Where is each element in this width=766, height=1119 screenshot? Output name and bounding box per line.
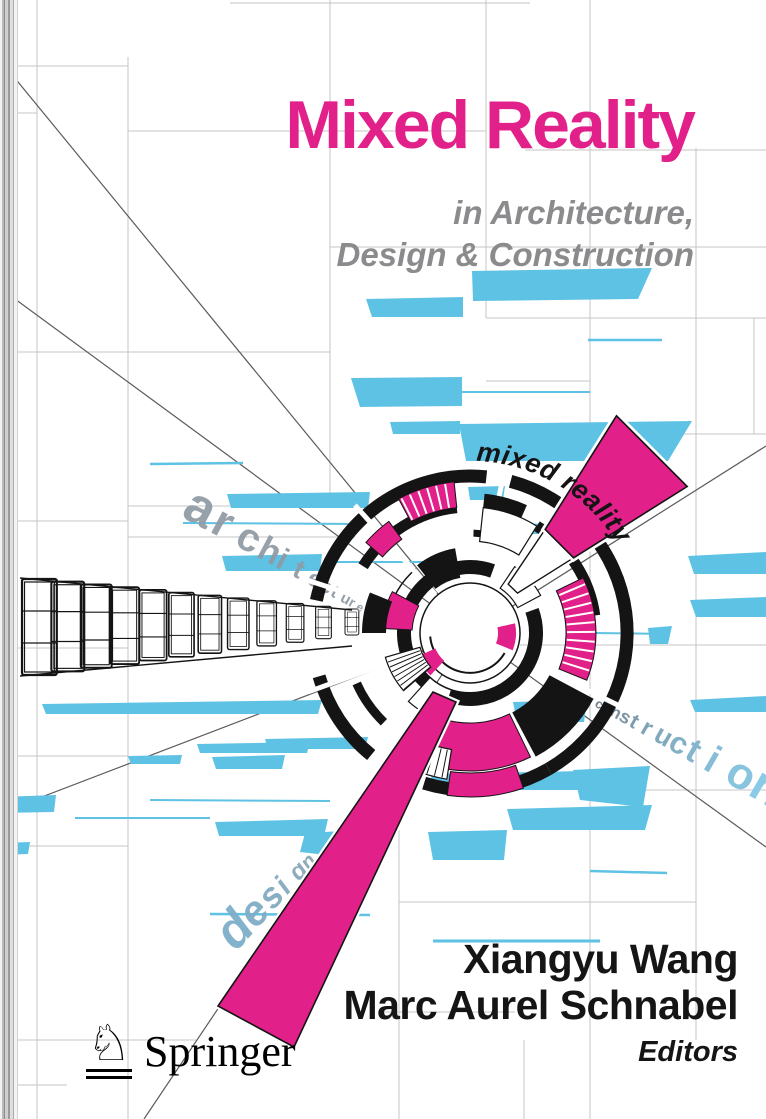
book-cover: architectureconstructiondesign mixed rea… (0, 0, 766, 1119)
perspective-words: architectureconstructiondesign (174, 475, 766, 959)
wireframe-tunnel (20, 578, 359, 676)
logo-underline (86, 1069, 132, 1079)
subtitle-line-1: in Architecture, (336, 192, 694, 234)
subtitle-line-2: Design & Construction (336, 234, 694, 276)
editors-label: Editors (638, 1036, 738, 1069)
authors-block: Xiangyu Wang Marc Aurel Schnabel (343, 936, 738, 1029)
book-title: Mixed Reality (285, 90, 694, 161)
book-subtitle: in Architecture, Design & Construction (336, 192, 694, 276)
springer-horse-icon: ♘ (86, 1018, 132, 1079)
spine-strip (0, 0, 18, 1119)
publisher-logo: ♘ Springer (86, 1018, 296, 1079)
publisher-wordmark: Springer (144, 1030, 296, 1074)
author-1: Xiangyu Wang (343, 936, 738, 982)
author-2: Marc Aurel Schnabel (343, 982, 738, 1028)
